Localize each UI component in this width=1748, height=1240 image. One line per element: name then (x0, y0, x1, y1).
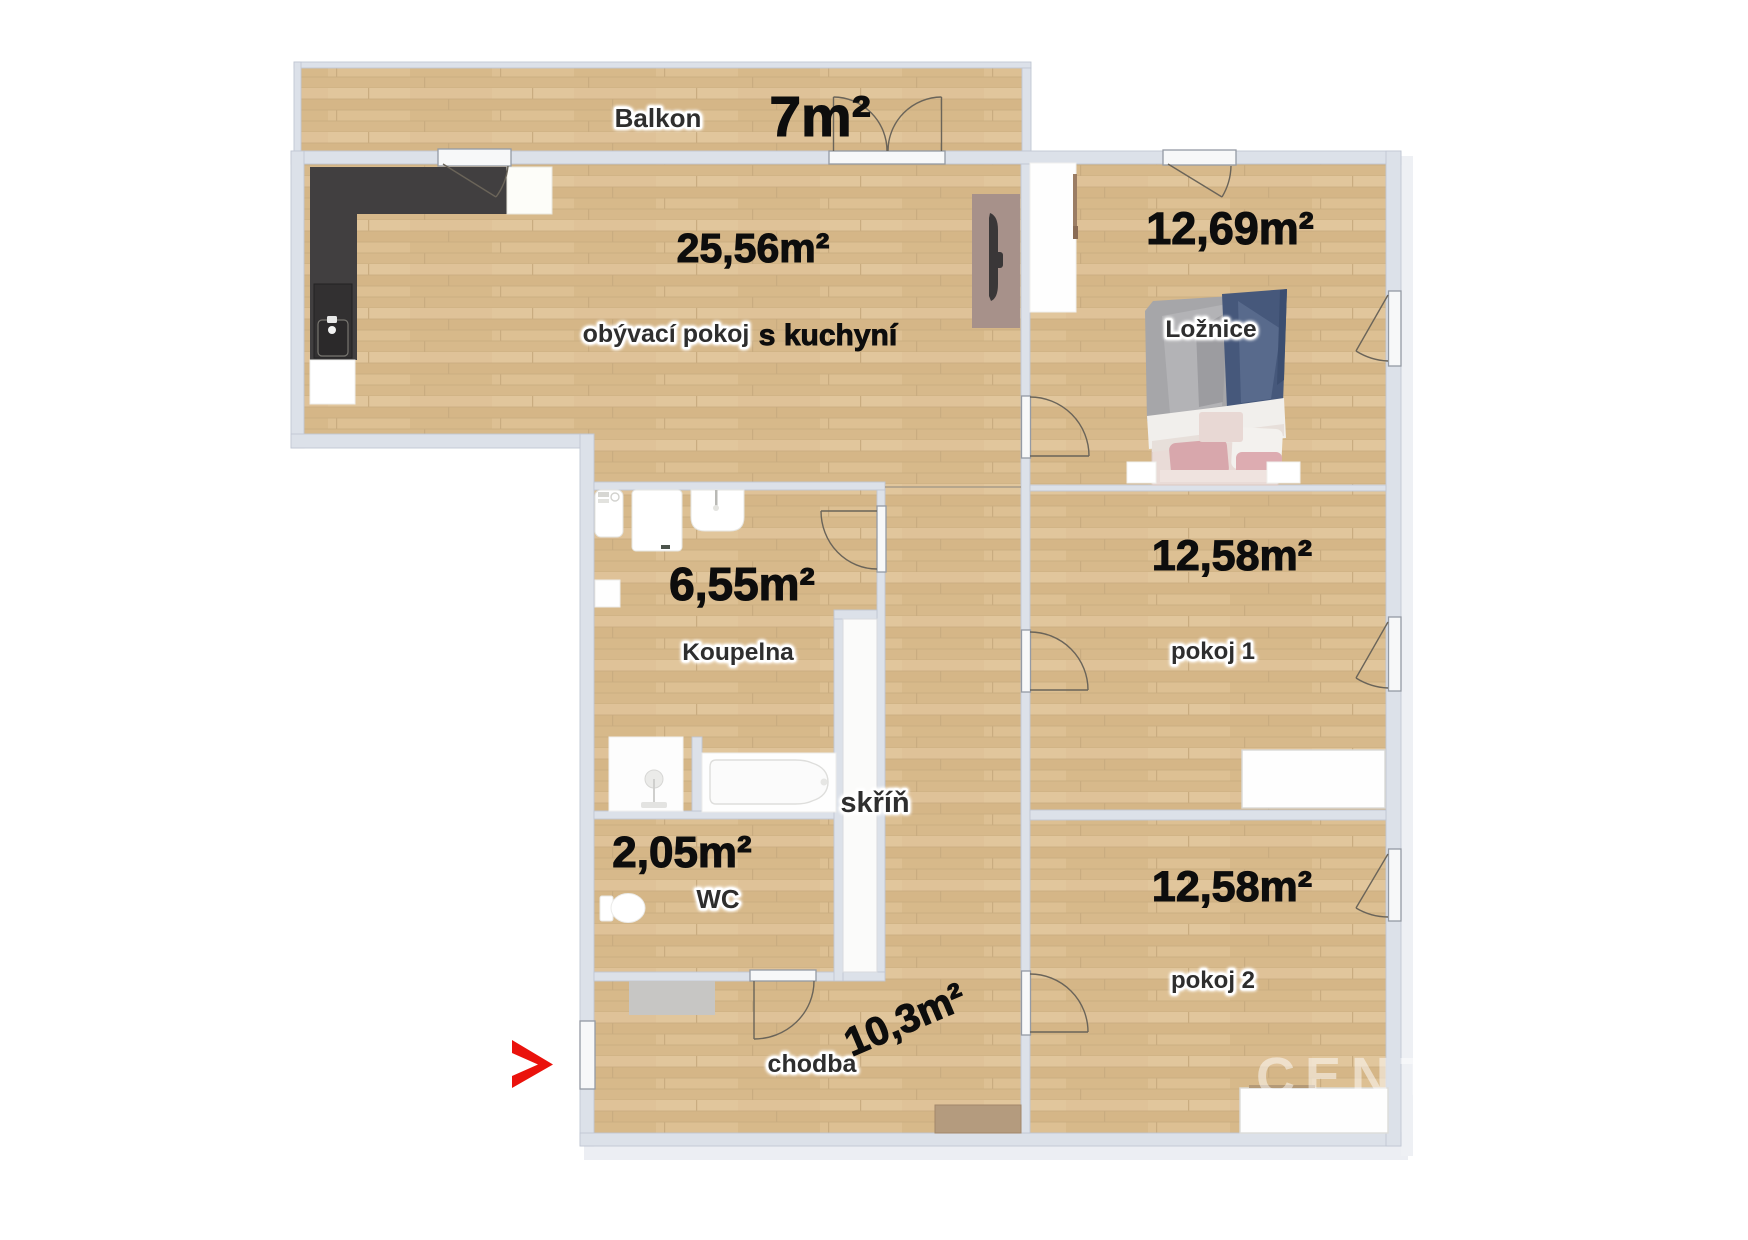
svg-text:12,58m²: 12,58m² (1152, 863, 1312, 911)
svg-text:pokoj 1: pokoj 1 (1171, 638, 1255, 665)
svg-text:6,55m²: 6,55m² (669, 558, 815, 610)
svg-text:s kuchyní: s kuchyní (759, 319, 899, 352)
svg-text:Koupelna: Koupelna (682, 639, 794, 666)
svg-text:pokoj 2: pokoj 2 (1171, 967, 1255, 994)
svg-text:skříň: skříň (840, 787, 909, 819)
svg-text:Balkon: Balkon (615, 103, 702, 133)
svg-text:CENT: CENT (1256, 1047, 1443, 1107)
svg-text:12,58m²: 12,58m² (1152, 532, 1312, 580)
svg-text:Ložnice: Ložnice (1165, 316, 1256, 343)
svg-text:obývací pokoj: obývací pokoj (583, 320, 750, 348)
svg-text:7m²: 7m² (769, 85, 870, 149)
svg-text:2,05m²: 2,05m² (612, 828, 751, 877)
svg-text:25,56m²: 25,56m² (677, 225, 830, 271)
svg-text:WC: WC (696, 884, 740, 914)
svg-text:chodba: chodba (768, 1050, 858, 1078)
svg-text:12,69m²: 12,69m² (1146, 203, 1314, 254)
